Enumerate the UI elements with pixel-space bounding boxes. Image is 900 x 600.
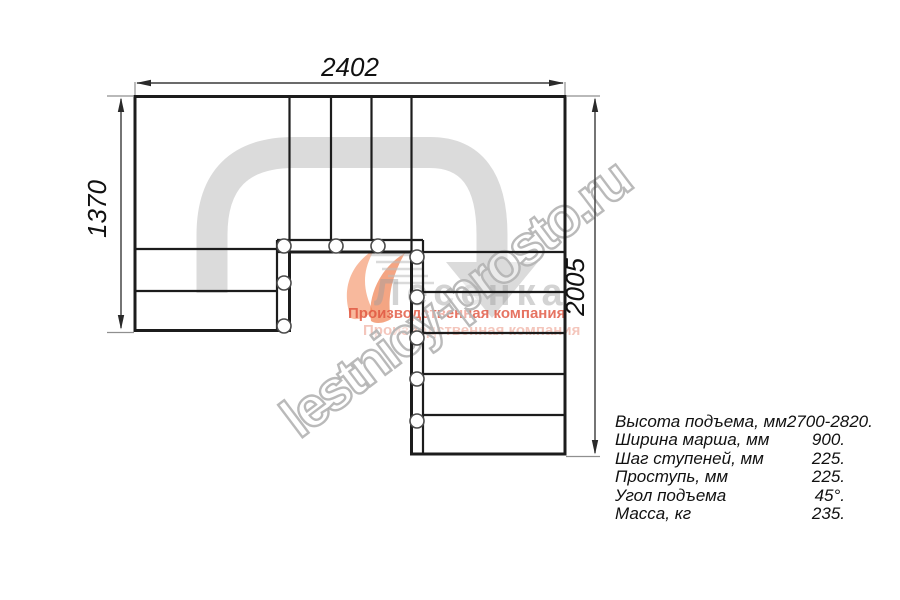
dimension-left-height: 1370 <box>82 180 112 238</box>
spec-label: Ширина марша, мм <box>615 431 769 449</box>
baluster-posts <box>277 239 424 428</box>
dimension-right-height: 2005 <box>560 258 590 317</box>
spec-value: 225. <box>812 450 845 468</box>
dimension-lines <box>121 83 595 453</box>
spec-value: 2700-2820. <box>787 413 873 431</box>
spec-value: 45°. <box>815 487 845 505</box>
stair-outline <box>135 97 565 455</box>
spec-row-tread: Проступь, мм 225. <box>615 468 845 486</box>
extension-lines <box>107 82 600 457</box>
spec-value: 235. <box>812 505 845 523</box>
spec-row-height: Высота подъема, мм 2700-2820. <box>615 413 845 431</box>
spec-row-march-width: Ширина марша, мм 900. <box>615 431 845 449</box>
spec-label: Высота подъема, мм <box>615 413 787 431</box>
spec-value: 900. <box>812 431 845 449</box>
spec-label: Угол подъема <box>615 487 726 505</box>
spec-table: Высота подъема, мм 2700-2820. Ширина мар… <box>615 413 845 523</box>
spec-label: Проступь, мм <box>615 468 728 486</box>
dimension-labels: 2402 1370 2005 <box>82 52 590 317</box>
spec-value: 225. <box>812 468 845 486</box>
spec-label: Шаг ступеней, мм <box>615 450 764 468</box>
dimension-top-width: 2402 <box>320 52 379 82</box>
spec-label: Масса, кг <box>615 505 691 523</box>
spec-row-angle: Угол подъема 45°. <box>615 487 845 505</box>
spec-row-step-pitch: Шаг ступеней, мм 225. <box>615 450 845 468</box>
dimension-arrow-icons <box>118 80 598 455</box>
stair-steps <box>135 97 565 454</box>
staircase-drawing-page: Лесенка Производственная компания Произв… <box>0 0 900 600</box>
spec-row-mass: Масса, кг 235. <box>615 505 845 523</box>
